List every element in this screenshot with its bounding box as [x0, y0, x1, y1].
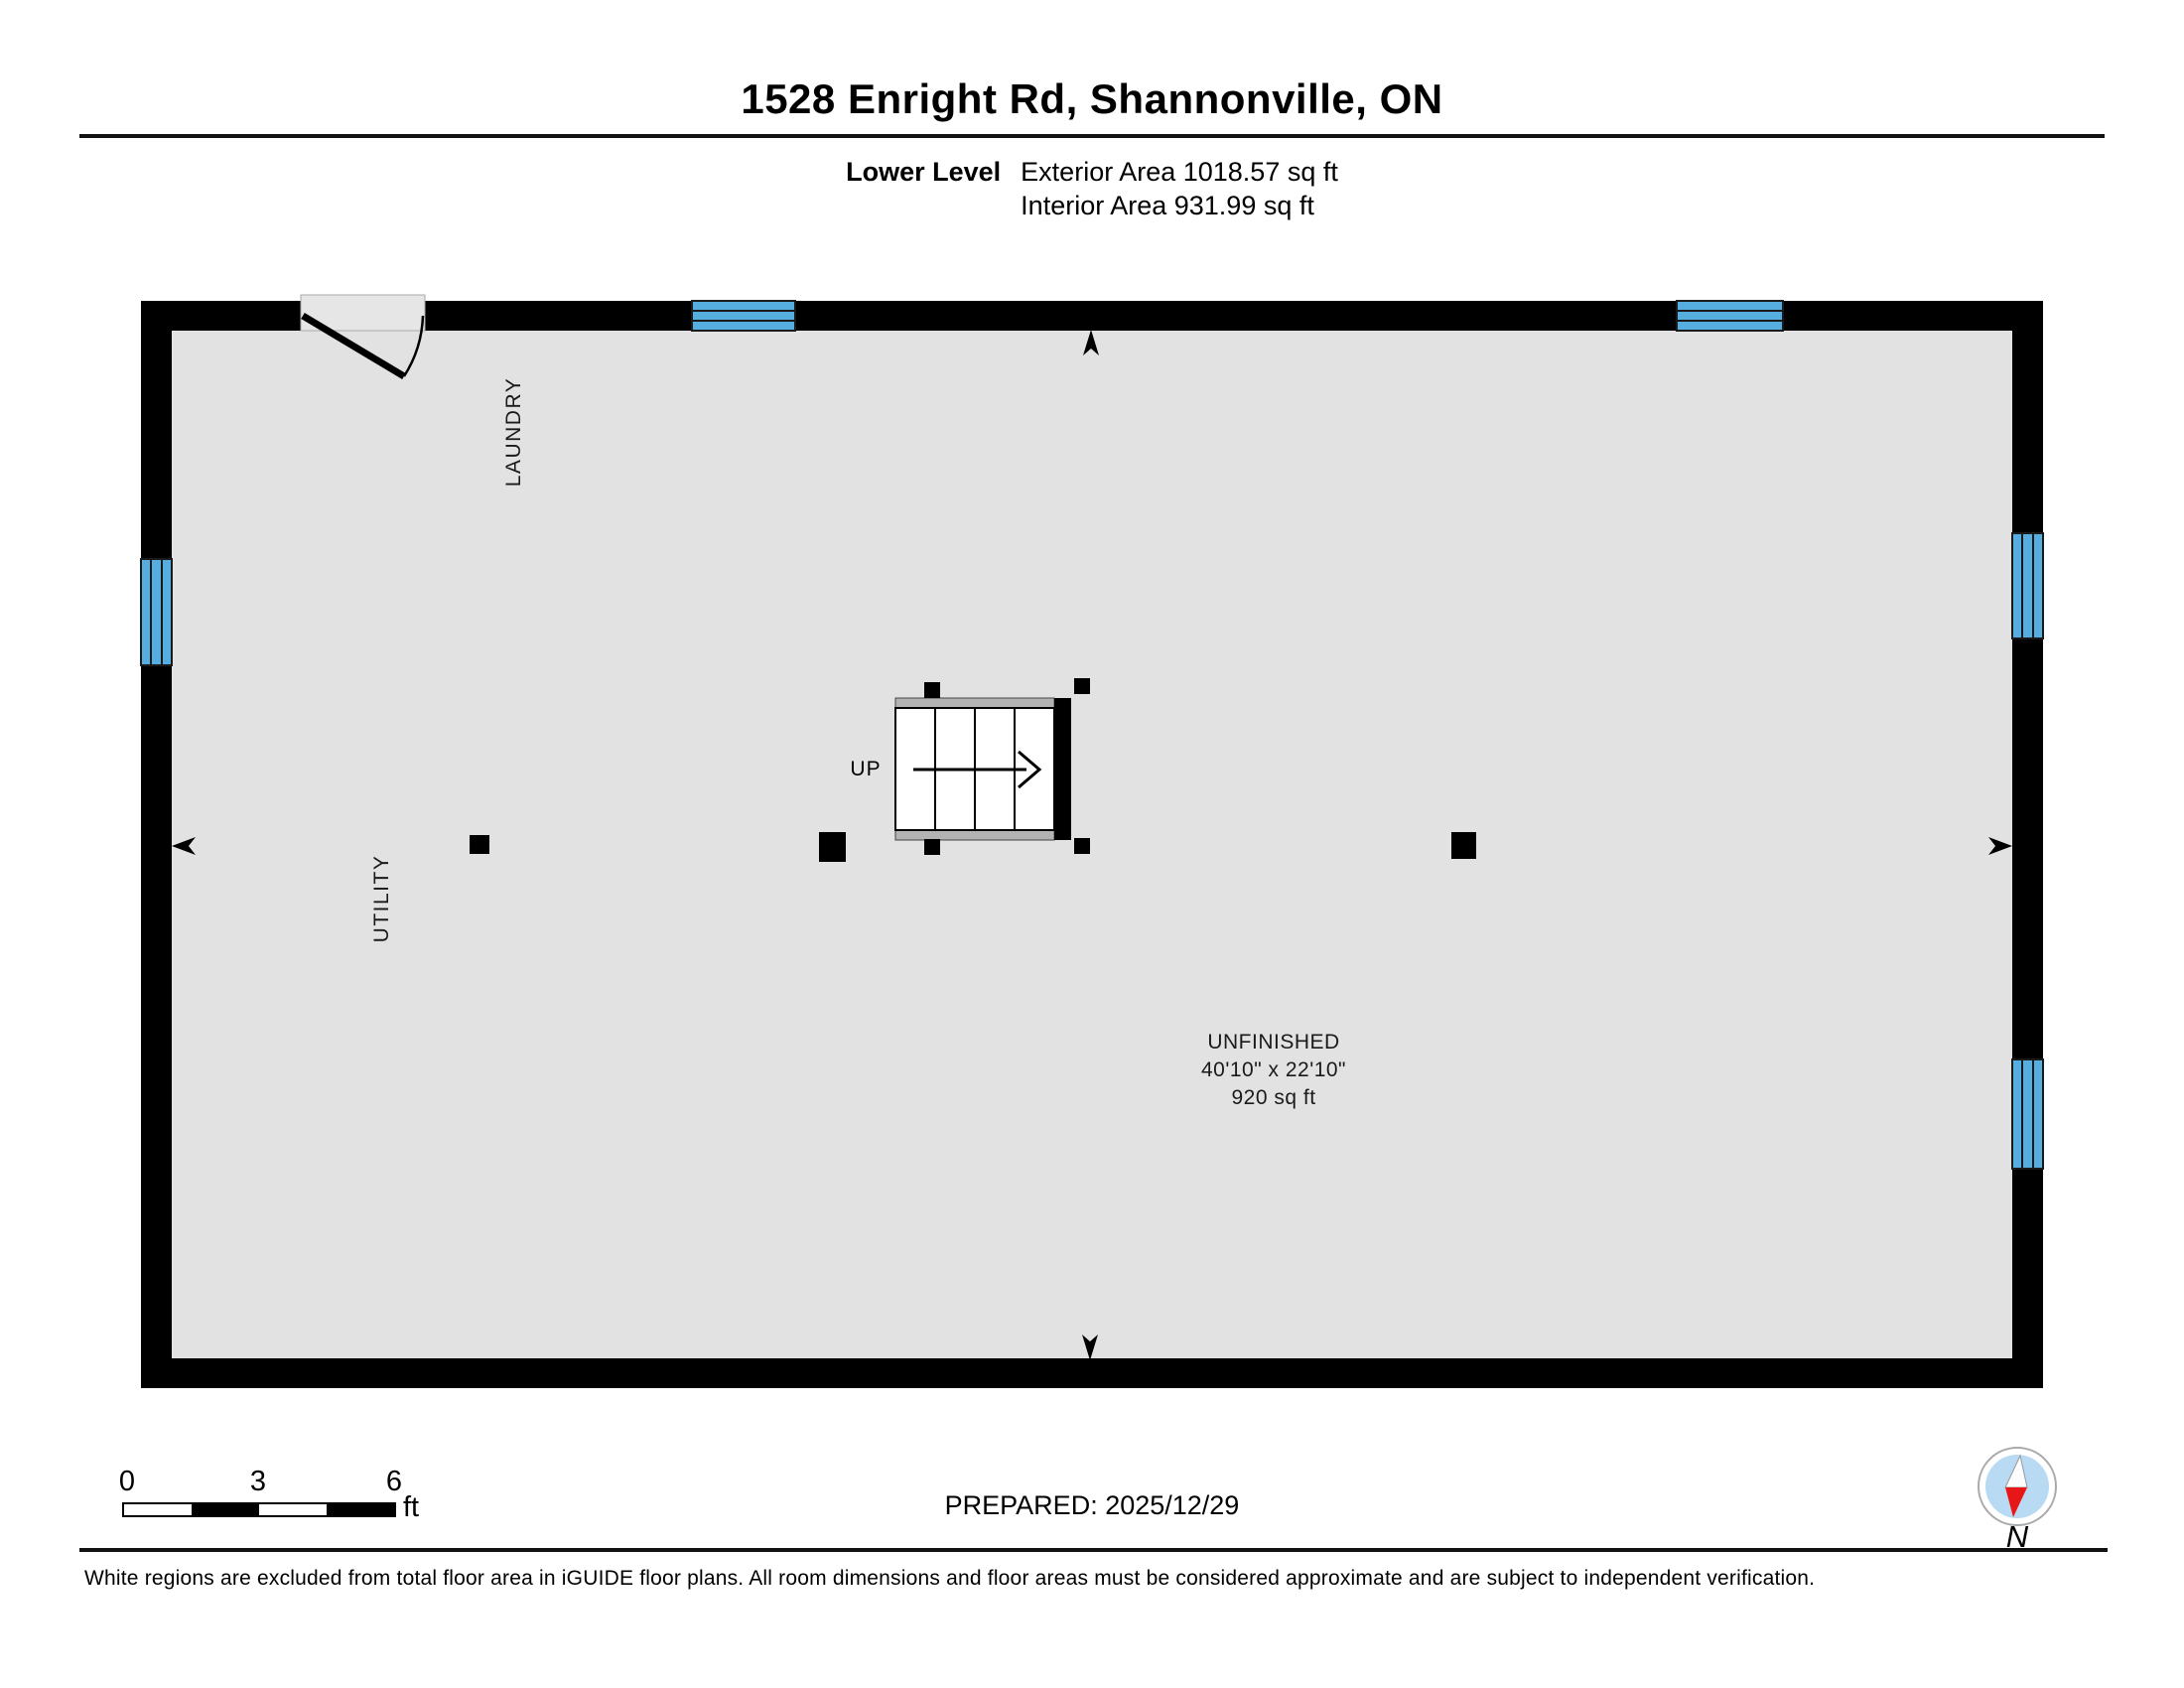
- wall-bottom: [141, 1358, 2043, 1388]
- post: [924, 839, 940, 855]
- window-right-upper: [2012, 533, 2043, 638]
- support-post: [819, 832, 846, 862]
- unfinished-area: 920 sq ft: [1201, 1084, 1346, 1112]
- floor-area: [171, 330, 2013, 1359]
- staircase: [895, 678, 1090, 855]
- room-label-utility: UTILITY: [370, 855, 394, 943]
- support-post: [470, 835, 489, 854]
- room-label-unfinished: UNFINISHED 40'10" x 22'10" 920 sq ft: [1201, 1029, 1346, 1112]
- unfinished-dimensions: 40'10" x 22'10": [1201, 1056, 1346, 1084]
- window-left: [141, 559, 172, 665]
- window-pane: [1677, 301, 1783, 331]
- stair-side-wall: [1054, 698, 1071, 840]
- window-pane: [141, 559, 172, 665]
- post: [1074, 838, 1090, 854]
- post: [1074, 678, 1090, 694]
- support-post: [1451, 832, 1476, 859]
- disclaimer-text: White regions are excluded from total fl…: [84, 1567, 1815, 1591]
- floorplan-page: 1528 Enright Rd, Shannonville, ON Lower …: [0, 0, 2184, 1688]
- window-pane: [692, 301, 795, 331]
- stair-stringer-top: [895, 698, 1054, 708]
- room-label-laundry: LAUNDRY: [502, 377, 526, 487]
- window-right-lower: [2012, 1059, 2043, 1169]
- stair-stringer-bottom: [895, 830, 1054, 840]
- floorplan-svg: [0, 0, 2184, 1688]
- wall-right: [2012, 301, 2043, 1388]
- window-pane: [2012, 1059, 2043, 1169]
- wall-left: [141, 301, 172, 1388]
- window-top-left: [692, 301, 795, 331]
- footer-rule: [79, 1548, 2108, 1552]
- post: [924, 682, 940, 698]
- window-pane: [2012, 533, 2043, 638]
- stairs-up-label: UP: [850, 758, 881, 781]
- window-top-right: [1677, 301, 1783, 331]
- prepared-date: PREPARED: 2025/12/29: [0, 1490, 2184, 1521]
- unfinished-name: UNFINISHED: [1201, 1029, 1346, 1056]
